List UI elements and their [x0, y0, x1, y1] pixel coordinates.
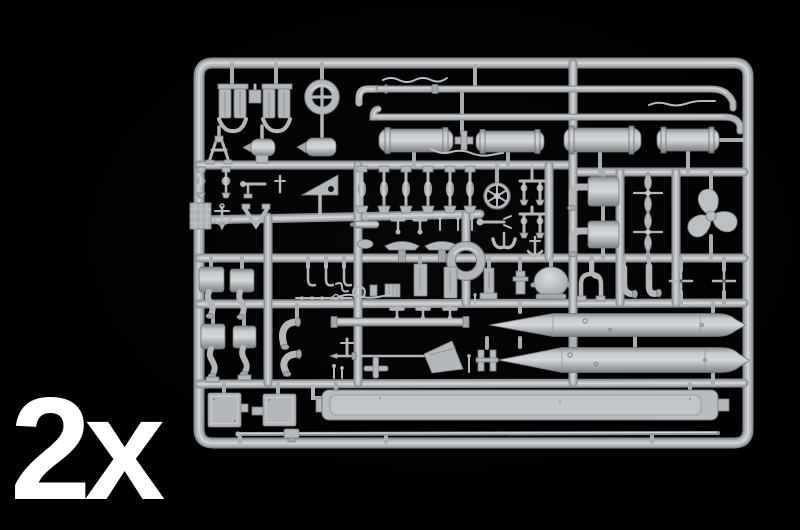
torpedo-half — [498, 348, 749, 373]
small-tank — [297, 112, 336, 156]
deck-plank — [313, 386, 729, 420]
wavy-cable — [383, 78, 447, 82]
cross-part — [364, 357, 388, 378]
post-with-bar — [341, 339, 353, 356]
stamped-plate — [190, 203, 211, 229]
small-box-part — [249, 85, 261, 103]
air-flask — [476, 130, 544, 154]
pin-fitting — [332, 364, 344, 378]
bollard-post — [422, 166, 434, 213]
oval-pad — [357, 240, 373, 249]
rudder-pair — [218, 84, 248, 131]
lever-arm — [240, 181, 265, 198]
torpedo-half — [489, 314, 745, 337]
bollard-post — [444, 166, 456, 213]
muffler-with-pipe — [233, 326, 256, 380]
pipe-coupler-cross — [455, 131, 473, 150]
horn-bracket — [493, 233, 515, 248]
deck-stanchions — [520, 166, 544, 205]
small-anchor-prop — [528, 237, 542, 257]
quantity-label: 2x — [10, 376, 158, 522]
small-cross-prop — [713, 270, 735, 292]
square-hatch-panel — [208, 393, 248, 427]
air-flask — [657, 127, 719, 153]
rudder-pair — [262, 84, 292, 131]
four-blade-propeller — [634, 172, 662, 214]
cross-pin — [275, 176, 285, 192]
ball-top-post — [197, 167, 206, 198]
muffler-with-pipe — [201, 324, 225, 382]
ships-helm-wheel — [484, 183, 511, 210]
hatch-bracket — [444, 267, 457, 298]
wavy-cable — [649, 101, 715, 106]
handwheel-ring — [305, 80, 340, 115]
air-flask — [564, 126, 641, 154]
wedge-bracket — [302, 175, 338, 214]
dome-vent — [531, 267, 572, 299]
long-pipe-lower — [373, 109, 740, 131]
flanged-post — [513, 271, 528, 294]
thick-elbow-pipes — [281, 318, 302, 377]
four-blade-propeller — [634, 211, 662, 253]
bollard-post — [400, 166, 412, 213]
valve-fitting — [414, 217, 426, 235]
slotted-bracket — [480, 268, 497, 299]
runner-segment — [199, 303, 744, 304]
hatch-bracket — [414, 264, 427, 296]
three-blade-propeller — [684, 189, 741, 240]
runner-segment — [199, 383, 744, 384]
davit-tripod — [206, 127, 232, 164]
deck-stanchions — [520, 207, 544, 238]
bollard-post — [464, 166, 476, 213]
thin-antenna-rod — [235, 431, 718, 436]
muffler-with-pipe — [230, 269, 254, 320]
bollard-post — [378, 166, 390, 213]
h-frame-bracket — [467, 350, 498, 372]
air-flask — [379, 128, 453, 154]
funnel-cone — [424, 341, 463, 373]
square-hatch-panel — [252, 394, 296, 426]
valve-fitting — [392, 217, 404, 235]
deck-hook — [306, 265, 351, 285]
photo-stage: 2x — [0, 0, 800, 530]
ball-top-post — [222, 167, 231, 198]
